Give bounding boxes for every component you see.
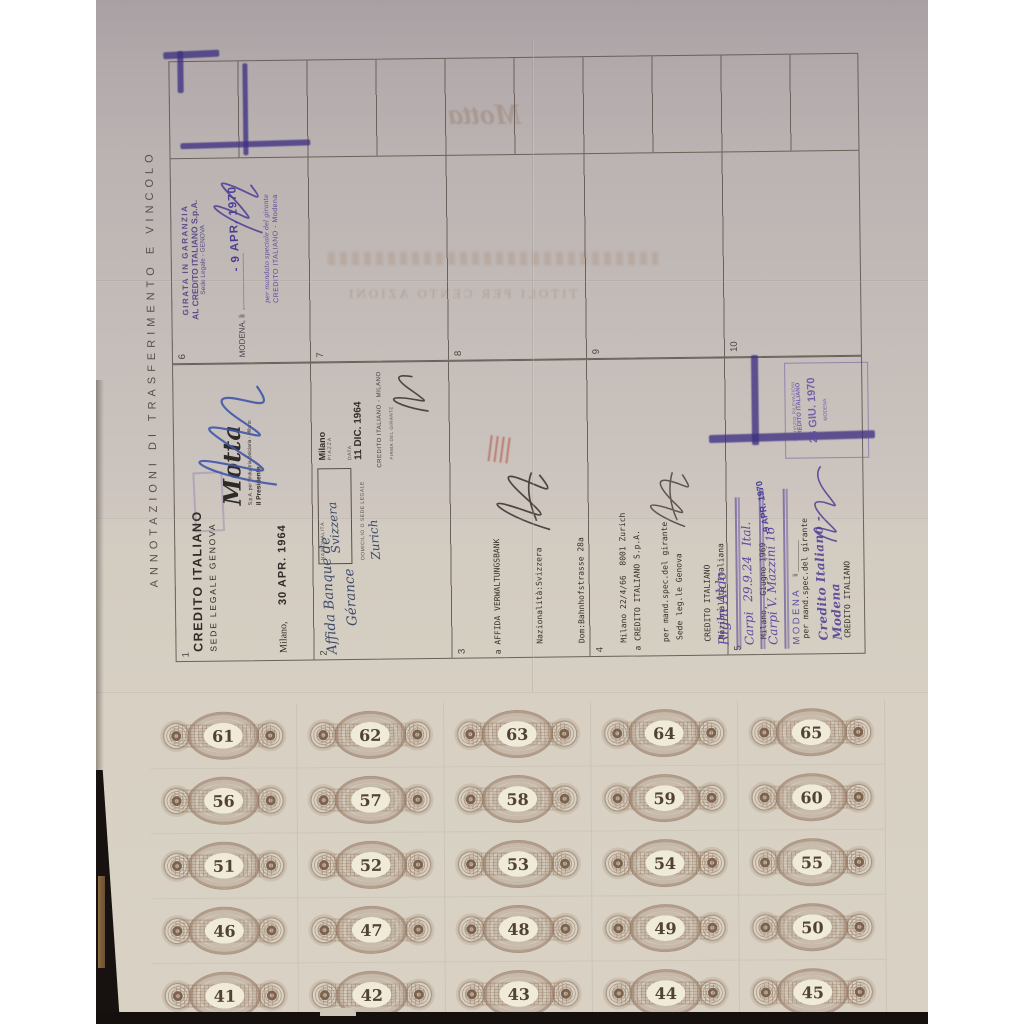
background-bottom <box>96 1012 928 1024</box>
coupon-number: 65 <box>800 723 822 742</box>
coupon-row: 4647484950 <box>151 895 886 964</box>
rosette-icon <box>457 850 485 878</box>
rosette-icon <box>551 915 579 943</box>
coupon-medallion: 53 <box>483 841 553 887</box>
coupon-row: 5657585960 <box>150 765 885 834</box>
coupon-number: 57 <box>359 790 381 809</box>
coupon-number: 51 <box>213 856 235 875</box>
coupon-medallion: 57 <box>335 777 405 823</box>
rosette-icon <box>404 916 432 944</box>
coupon-57: 57 <box>297 767 444 833</box>
rosette-icon <box>750 718 778 746</box>
paper-document: Motta TITOLI PER CENTO AZIONI ANNOTAZION… <box>96 0 928 1024</box>
coupon-ornament: 51 <box>163 838 285 893</box>
rosette-icon <box>257 851 285 879</box>
next-coupon-fragment <box>320 1008 356 1016</box>
rosette-icon <box>698 849 726 877</box>
coupon-number: 62 <box>359 725 381 744</box>
coupon-medallion: 45 <box>778 969 848 1015</box>
coupon-number: 59 <box>653 789 675 808</box>
coupon-ornament: 57 <box>309 773 431 828</box>
rosette-icon <box>257 916 285 944</box>
coupon-number: 61 <box>212 726 234 745</box>
rosette-icon <box>163 852 191 880</box>
rosette-icon <box>845 913 873 941</box>
rosette-icon <box>751 783 779 811</box>
coupon-50: 50 <box>739 895 886 961</box>
rosette-icon <box>697 719 725 747</box>
coupon-medallion: 54 <box>630 840 700 886</box>
rosette-icon <box>404 851 432 879</box>
coupon-medallion: 47 <box>336 907 406 953</box>
coupon-number: 48 <box>507 919 529 938</box>
rosette-icon <box>310 916 338 944</box>
coupon-62: 62 <box>297 702 444 768</box>
coupon-54: 54 <box>592 831 739 897</box>
coupon-ornament: 56 <box>162 773 284 828</box>
coupon-ornament: 64 <box>603 706 725 761</box>
rosette-icon <box>310 851 338 879</box>
rosette-icon <box>698 784 726 812</box>
rosette-icon <box>552 980 580 1008</box>
rosette-icon <box>551 850 579 878</box>
coupon-number: 47 <box>360 920 382 939</box>
coupon-46: 46 <box>151 898 298 964</box>
rosette-icon <box>845 783 873 811</box>
rosette-icon <box>751 913 779 941</box>
coupon-row: 6162636465 <box>150 700 885 769</box>
coupon-medallion: 63 <box>482 711 552 757</box>
coupon-51: 51 <box>151 833 298 899</box>
coupon-55: 55 <box>739 830 886 896</box>
rosette-icon <box>550 720 578 748</box>
coupon-ornament: 62 <box>309 708 431 763</box>
coupon-number: 54 <box>654 854 676 873</box>
rosette-icon <box>844 718 872 746</box>
coupon-row: 5152535455 <box>151 830 886 899</box>
coupon-63: 63 <box>444 702 591 768</box>
rosette-icon <box>605 979 633 1007</box>
coupon-49: 49 <box>592 896 739 962</box>
rosette-icon <box>604 784 632 812</box>
rosette-icon <box>405 981 433 1009</box>
coupon-ornament: 46 <box>163 903 285 958</box>
rosette-icon <box>604 914 632 942</box>
coupon-grid: 6162636465565758596051525354554647484950… <box>150 700 887 1024</box>
coupon-number: 53 <box>507 854 529 873</box>
rosette-icon <box>752 978 780 1006</box>
coupon-medallion: 58 <box>482 776 552 822</box>
coupon-number: 52 <box>360 855 382 874</box>
rosette-icon <box>458 980 486 1008</box>
rosette-icon <box>699 979 727 1007</box>
rosette-icon <box>698 914 726 942</box>
coupon-medallion: 64 <box>629 710 699 756</box>
coupon-medallion: 46 <box>189 908 259 954</box>
rosette-icon <box>404 786 432 814</box>
coupon-sheet: 6162636465565758596051525354554647484950… <box>96 0 928 1024</box>
coupon-medallion: 56 <box>188 778 258 824</box>
coupon-ornament: 55 <box>751 835 873 890</box>
rosette-icon <box>311 981 339 1009</box>
coupon-medallion: 48 <box>483 906 553 952</box>
coupon-ornament: 65 <box>750 705 872 760</box>
coupon-medallion: 55 <box>777 839 847 885</box>
coupon-number: 43 <box>508 984 530 1003</box>
coupon-52: 52 <box>298 832 445 898</box>
coupon-ornament: 61 <box>162 708 284 763</box>
coupon-ornament: 49 <box>604 901 726 956</box>
rosette-icon <box>258 981 286 1009</box>
coupon-medallion: 62 <box>335 712 405 758</box>
coupon-number: 46 <box>213 921 235 940</box>
rosette-icon <box>310 786 338 814</box>
coupon-number: 55 <box>801 853 823 872</box>
rosette-icon <box>163 917 191 945</box>
rosette-icon <box>551 785 579 813</box>
coupon-medallion: 50 <box>777 904 847 950</box>
coupon-number: 56 <box>212 791 234 810</box>
coupon-ornament: 59 <box>603 771 725 826</box>
photo-of-share-certificate: Motta TITOLI PER CENTO AZIONI ANNOTAZION… <box>0 0 1024 1024</box>
background-object <box>98 876 105 968</box>
coupon-60: 60 <box>738 765 885 831</box>
coupon-number: 42 <box>361 985 383 1004</box>
coupon-medallion: 49 <box>630 905 700 951</box>
coupon-ornament: 50 <box>751 900 873 955</box>
coupon-58: 58 <box>444 767 591 833</box>
coupon-number: 41 <box>214 986 236 1005</box>
coupon-medallion: 52 <box>336 842 406 888</box>
coupon-medallion: 43 <box>484 971 554 1017</box>
coupon-number: 63 <box>506 724 528 743</box>
coupon-medallion: 61 <box>188 713 258 759</box>
coupon-ornament: 60 <box>750 770 872 825</box>
rosette-icon <box>845 848 873 876</box>
coupon-48: 48 <box>445 897 592 963</box>
rosette-icon <box>604 849 632 877</box>
coupon-ornament: 52 <box>310 838 432 893</box>
rosette-icon <box>457 785 485 813</box>
rosette-icon <box>309 721 337 749</box>
coupon-medallion: 44 <box>631 970 701 1016</box>
rosette-icon <box>256 721 284 749</box>
coupon-ornament: 47 <box>310 903 432 958</box>
rosette-icon <box>846 978 874 1006</box>
coupon-number: 58 <box>506 789 528 808</box>
rosette-icon <box>164 982 192 1010</box>
coupon-53: 53 <box>445 832 592 898</box>
coupon-65: 65 <box>738 700 885 766</box>
coupon-number: 49 <box>654 919 676 938</box>
coupon-medallion: 65 <box>776 709 846 755</box>
coupon-59: 59 <box>591 766 738 832</box>
rosette-icon <box>456 720 484 748</box>
coupon-64: 64 <box>591 701 738 767</box>
coupon-47: 47 <box>298 897 445 963</box>
coupon-ornament: 63 <box>456 707 578 762</box>
coupon-medallion: 60 <box>776 774 846 820</box>
coupon-medallion: 51 <box>189 843 259 889</box>
coupon-medallion: 59 <box>629 775 699 821</box>
coupon-number: 64 <box>653 724 675 743</box>
rosette-icon <box>257 786 285 814</box>
coupon-number: 60 <box>800 788 822 807</box>
rosette-icon <box>162 722 190 750</box>
coupon-ornament: 54 <box>604 836 726 891</box>
coupon-ornament: 53 <box>457 837 579 892</box>
coupon-56: 56 <box>150 768 297 834</box>
rosette-icon <box>751 848 779 876</box>
rosette-icon <box>603 719 631 747</box>
coupon-61: 61 <box>150 703 297 769</box>
coupon-number: 50 <box>801 918 823 937</box>
rosette-icon <box>163 787 191 815</box>
coupon-ornament: 48 <box>457 902 579 957</box>
rosette-icon <box>457 915 485 943</box>
rosette-icon <box>403 721 431 749</box>
coupon-number: 45 <box>802 983 824 1002</box>
coupon-ornament: 58 <box>456 772 578 827</box>
coupon-number: 44 <box>655 984 677 1003</box>
